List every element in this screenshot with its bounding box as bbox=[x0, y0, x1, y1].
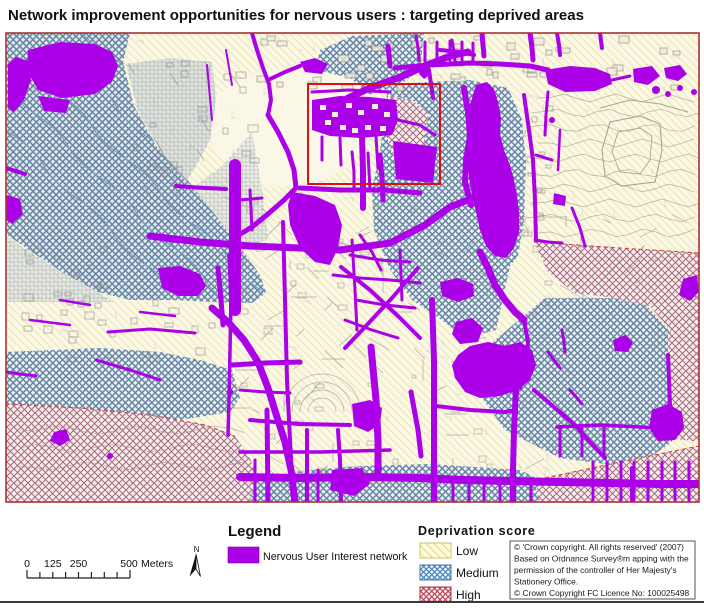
svg-text:Nervous User Interest network: Nervous User Interest network bbox=[263, 551, 408, 563]
svg-text:Low: Low bbox=[456, 544, 478, 558]
svg-text:500: 500 bbox=[120, 558, 138, 570]
svg-text:Stationery Office.: Stationery Office. bbox=[514, 577, 578, 587]
svg-text:© Crown Copyright FC Licence N: © Crown Copyright FC Licence No: 1000254… bbox=[514, 588, 690, 598]
svg-text:250: 250 bbox=[70, 558, 88, 570]
svg-text:125: 125 bbox=[44, 558, 62, 570]
svg-text:Network improvement opportunit: Network improvement opportunities for ne… bbox=[8, 7, 584, 24]
svg-text:0: 0 bbox=[24, 558, 30, 570]
svg-text:High: High bbox=[456, 588, 481, 602]
svg-text:N: N bbox=[194, 545, 200, 554]
svg-text:Based on Ordnance Survey®m app: Based on Ordnance Survey®m apping with t… bbox=[514, 554, 689, 564]
svg-text:permission of the controller o: permission of the controller of Her Maje… bbox=[514, 565, 677, 575]
svg-text:Meters: Meters bbox=[141, 558, 173, 570]
svg-text:Medium: Medium bbox=[456, 566, 499, 580]
svg-text:© 'Crown copyright. All rights: © 'Crown copyright. All rights reserved'… bbox=[514, 542, 684, 552]
svg-text:Legend: Legend bbox=[228, 523, 281, 540]
svg-text:Deprivation score: Deprivation score bbox=[418, 524, 536, 538]
